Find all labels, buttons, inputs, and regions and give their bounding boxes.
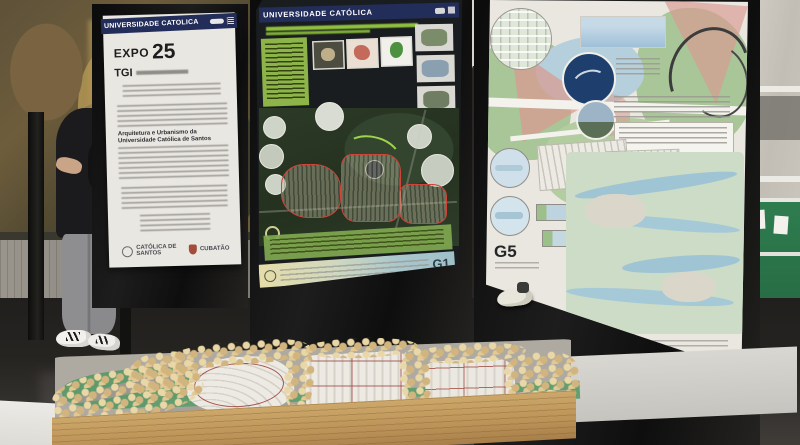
roundabout-photo-circle: [562, 52, 616, 106]
cubatao-logo: CUBATÃO: [189, 244, 230, 255]
photo-blob: [422, 60, 449, 77]
diagram-circle: [490, 148, 530, 188]
banner-logo-icon: [448, 6, 455, 13]
table-surface-right: [545, 346, 797, 423]
urban-area-outline: [281, 164, 341, 218]
map-thumbnail: [348, 40, 378, 68]
expo-word: EXPO: [114, 46, 150, 61]
stand-left-leg: [120, 308, 131, 354]
poster-left-banner: UNIVERSIDADE CATÓLICA: [101, 13, 238, 34]
counter-paper: [773, 216, 788, 235]
poster-middle-banner-text: UNIVERSIDADE CATÓLICA: [263, 6, 432, 19]
thumb-blob: [354, 45, 371, 61]
poster-middle: UNIVERSIDADE CATÓLICA: [256, 0, 462, 292]
urban-area-outline: [341, 154, 401, 222]
estuary-map: [566, 152, 744, 334]
expo-year: 25: [152, 40, 176, 65]
tgi-word: TGI: [114, 67, 133, 79]
banner-logo-icon: [435, 7, 445, 13]
map-inset-circle: [263, 116, 286, 139]
green-panel-text-lines: [265, 42, 305, 101]
poster-left: UNIVERSIDADE CATÓLICA EXPO 25 TGI Arquit…: [103, 12, 242, 267]
poster-left-bold-text: Arquitetura e Urbanismo da Universidade …: [118, 129, 228, 146]
note-lines: [619, 127, 727, 147]
green-intro-panel: [261, 37, 309, 107]
band-text-lines: [270, 229, 445, 257]
g5-subtext-lines: [495, 262, 539, 270]
land-patch: [586, 194, 646, 228]
photo-blob: [423, 91, 449, 108]
paragraph-lines: [117, 103, 228, 130]
thumb-blob: [321, 48, 335, 61]
photo-blob: [421, 29, 447, 46]
banner-pill-icon: [210, 18, 224, 24]
diagram-road-icon: [495, 212, 523, 219]
group-badge-g5: G5: [494, 242, 517, 261]
map-thumbnail: [382, 38, 412, 66]
cubatao-logo-text: CUBATÃO: [200, 246, 230, 253]
diagram-circle: [490, 196, 530, 236]
display-post: [28, 112, 44, 340]
city-photo-circle: [576, 100, 616, 140]
land-patch: [662, 272, 716, 302]
sneaker-stripes-icon: [66, 332, 80, 341]
group-badge-g5-wrap: G5: [494, 242, 517, 262]
poster-left-logos: CATÓLICA DE SANTOS CUBATÃO: [117, 238, 235, 261]
plan-text-lines: [616, 58, 660, 76]
tgi-row: TGI: [114, 66, 189, 80]
roundabout-road-icon: [569, 66, 610, 100]
map-inset-circle: [315, 102, 344, 131]
poster-left-banner-text: UNIVERSIDADE CATÓLICA: [104, 18, 207, 30]
plat-red-arc: [193, 361, 285, 410]
sneaker-stripes-icon: [96, 335, 109, 344]
urban-area-outline: [399, 184, 447, 224]
plan-paragraph-lines: [614, 96, 730, 118]
credits-lines: [140, 213, 210, 235]
photo-card: [416, 55, 454, 83]
photo-card: [415, 24, 453, 52]
visitor-sock: [517, 282, 529, 293]
map-thumbnail: [314, 42, 344, 69]
diagram-road-icon: [495, 165, 523, 171]
map-inset-circle: [259, 144, 284, 169]
cubatao-shield-icon: [189, 244, 197, 254]
tgi-subtitle-lines: [137, 70, 189, 75]
qr-code-icon: [227, 17, 234, 24]
footer-crest-icon: [264, 269, 277, 282]
catolica-crest-icon: [122, 246, 133, 257]
blue-banner-image: [580, 16, 666, 48]
exhibition-photo: UNIVERSIDADE CATÓLICA EXPO 25 TGI Arquit…: [0, 0, 800, 445]
poster-middle-subtitle-line: [266, 30, 370, 36]
catolica-logo-text: CATÓLICA DE SANTOS: [136, 244, 178, 257]
paragraph-lines: [118, 145, 229, 182]
poster-middle-banner: UNIVERSIDADE CATÓLICA: [259, 2, 459, 22]
intro-text-lines: [123, 83, 221, 98]
map-inset-circle: [421, 154, 454, 187]
thumb-blob: [390, 42, 404, 58]
catolica-logo: CATÓLICA DE SANTOS: [122, 244, 178, 257]
inset-grid-circle: [490, 8, 552, 70]
paragraph-lines: [121, 185, 228, 210]
expo-title: EXPO 25: [113, 40, 175, 66]
